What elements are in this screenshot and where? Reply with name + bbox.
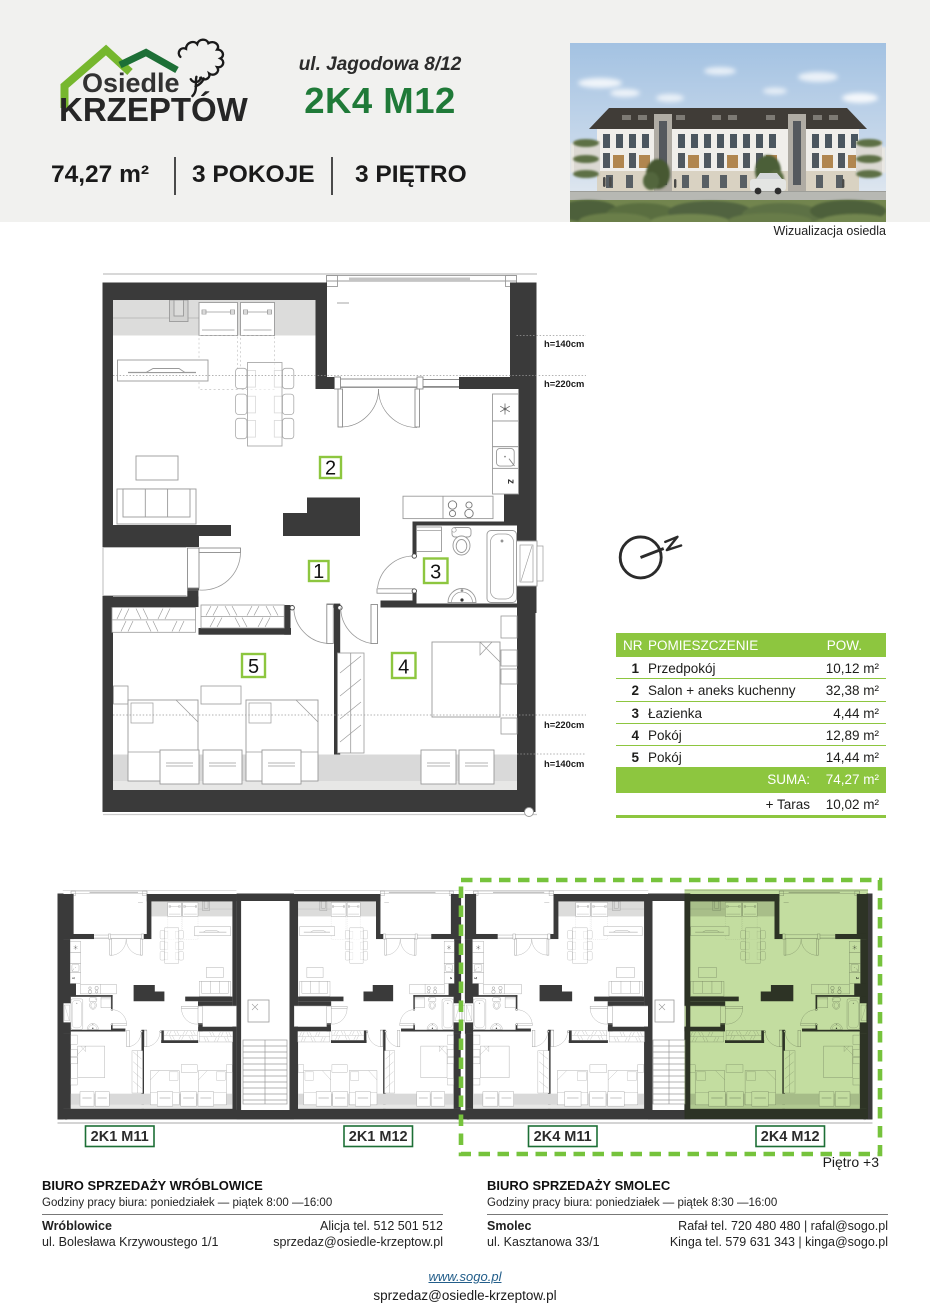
svg-text:KRZEPTÓW: KRZEPTÓW: [59, 91, 249, 128]
svg-text:2K1 M11: 2K1 M11: [91, 1129, 149, 1145]
svg-text:2K4 M11: 2K4 M11: [534, 1129, 592, 1145]
svg-text:2K1 M12: 2K1 M12: [349, 1129, 408, 1145]
svg-text:2: 2: [325, 458, 336, 480]
svg-text:h=140cm: h=140cm: [544, 758, 584, 769]
svg-text:5: 5: [248, 656, 259, 678]
svg-text:h=220cm: h=220cm: [544, 378, 584, 389]
svg-text:Piętro +3: Piętro +3: [823, 1154, 880, 1170]
svg-text:1: 1: [313, 561, 324, 583]
svg-text:z: z: [505, 479, 516, 484]
svg-text:3: 3: [430, 562, 441, 584]
svg-text:2K4 M12: 2K4 M12: [761, 1129, 820, 1145]
svg-text:h=140cm: h=140cm: [544, 338, 584, 349]
svg-text:4: 4: [398, 657, 409, 679]
svg-text:h=220cm: h=220cm: [544, 719, 584, 730]
